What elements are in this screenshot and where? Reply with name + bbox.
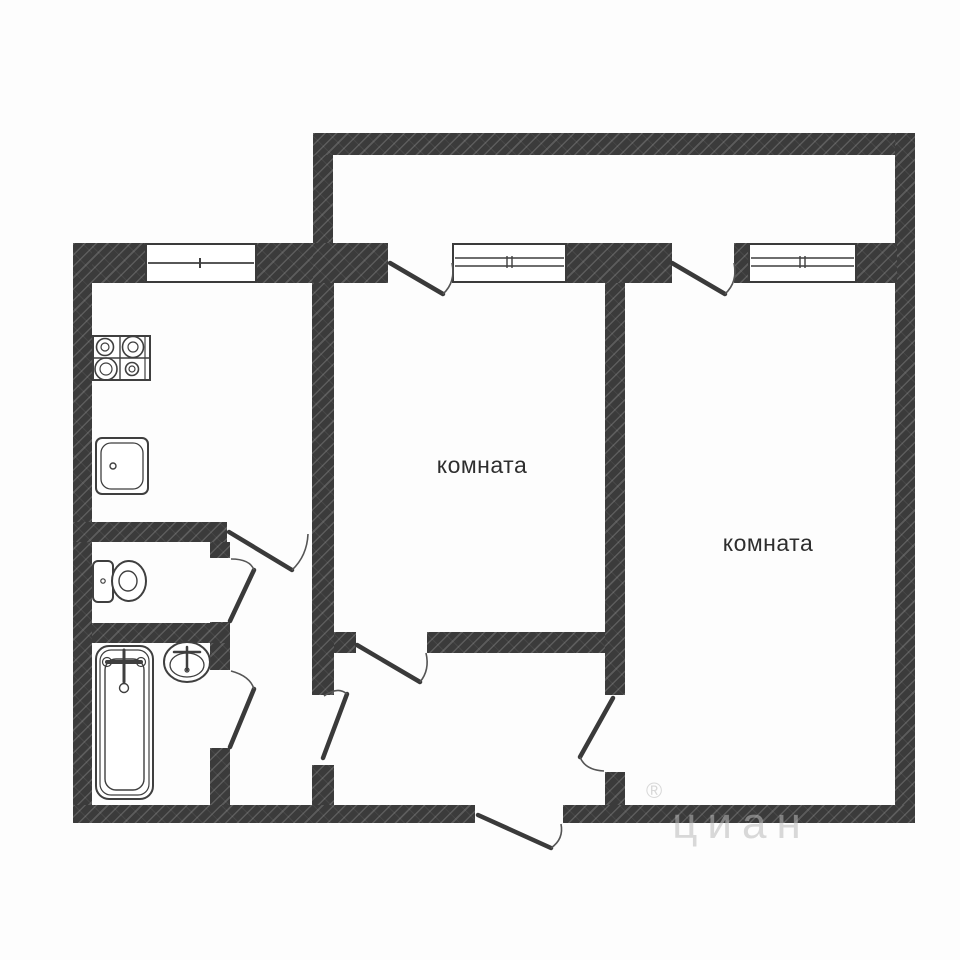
wc-door bbox=[230, 559, 254, 621]
bathtub-icon bbox=[96, 646, 153, 799]
room2-balcony-door bbox=[672, 263, 735, 294]
hallway-corridor-door bbox=[323, 690, 347, 758]
toilet-icon bbox=[93, 561, 146, 602]
stove-icon bbox=[93, 336, 150, 380]
floor-plan-drawing bbox=[0, 0, 960, 960]
bathroom-sink-icon bbox=[164, 642, 210, 682]
room2-window-glazing bbox=[751, 256, 854, 268]
kitchen-sink-icon bbox=[96, 438, 148, 494]
room1-window-glazing bbox=[455, 256, 564, 268]
room1-door bbox=[357, 645, 427, 682]
floor-plan: комната комната ® циан bbox=[0, 0, 960, 960]
room1-balcony-door bbox=[390, 263, 453, 294]
room1-label: комната bbox=[417, 452, 547, 479]
room2-door bbox=[580, 698, 613, 771]
entrance-door bbox=[478, 815, 562, 848]
bathroom-door bbox=[230, 671, 254, 747]
room2-label: комната bbox=[703, 530, 833, 557]
kitchen-window-glazing bbox=[148, 258, 254, 268]
kitchen-door bbox=[229, 532, 308, 570]
